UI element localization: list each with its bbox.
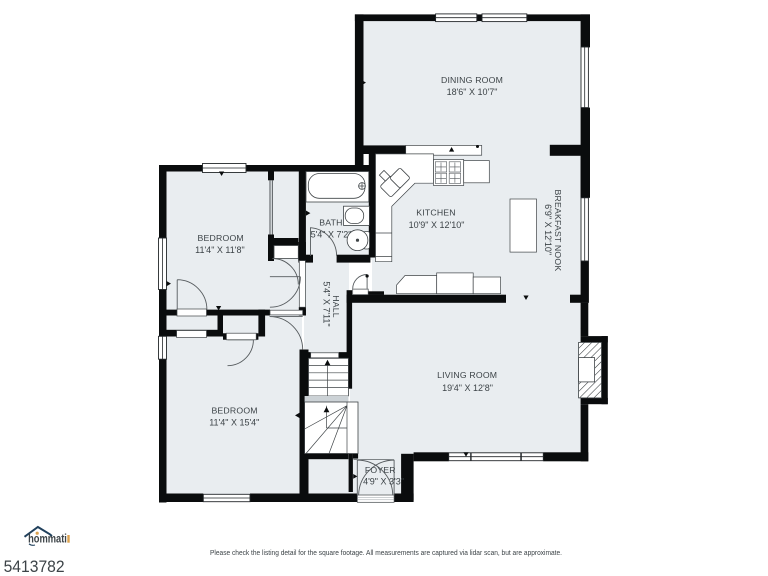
svg-text:19'4" X 12'8": 19'4" X 12'8" — [442, 383, 493, 393]
svg-text:6'9" X 12'10": 6'9" X 12'10" — [543, 204, 553, 255]
svg-text:BATH: BATH — [319, 218, 342, 228]
svg-text:BEDROOM: BEDROOM — [211, 406, 257, 416]
svg-text:11'4" X 15'4": 11'4" X 15'4" — [209, 418, 259, 428]
svg-text:FOYER: FOYER — [365, 465, 396, 475]
svg-text:18'6" X 10'7": 18'6" X 10'7" — [447, 87, 498, 97]
svg-text:KITCHEN: KITCHEN — [416, 208, 456, 218]
svg-text:4'9" X 3'3": 4'9" X 3'3" — [363, 477, 404, 487]
svg-text:5'4" X 7'2": 5'4" X 7'2" — [311, 230, 352, 240]
svg-text:hommati: hommati — [28, 534, 67, 546]
svg-text:10'9" X 12'10": 10'9" X 12'10" — [409, 220, 465, 230]
svg-text:DINING ROOM: DINING ROOM — [441, 75, 503, 85]
svg-text:5'4" X 7'11": 5'4" X 7'11" — [322, 281, 332, 326]
svg-text:LIVING ROOM: LIVING ROOM — [437, 370, 497, 380]
svg-text:5413782: 5413782 — [4, 557, 65, 576]
svg-text:BEDROOM: BEDROOM — [198, 233, 244, 243]
svg-text:BREAKFAST NOOK: BREAKFAST NOOK — [553, 189, 563, 271]
svg-text:11'4" X 11'8": 11'4" X 11'8" — [195, 245, 245, 255]
svg-text:Please check the listing detai: Please check the listing detail for the … — [210, 550, 562, 557]
